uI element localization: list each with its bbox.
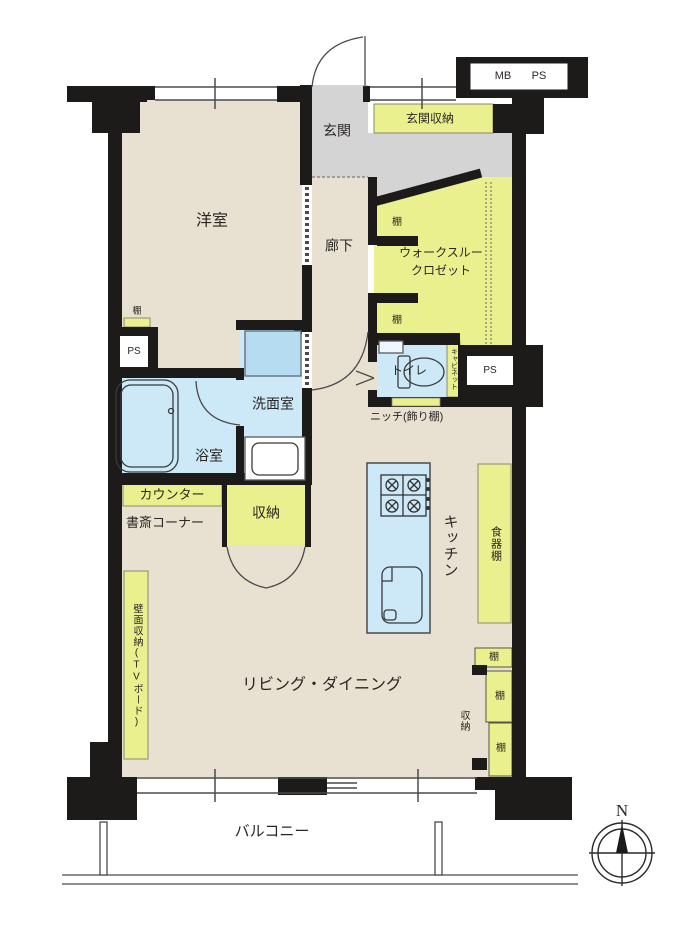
mb-ps-box (470, 63, 568, 90)
compass-needle (616, 824, 628, 853)
label-wtc-line2: クロゼット (411, 265, 471, 278)
label-shelf-br-a: 棚 (489, 653, 499, 664)
label-ps-meter: PS (532, 71, 547, 83)
label-toilet: トイレ (391, 365, 427, 378)
shelf-strip-left (124, 318, 150, 327)
label-ps-right: PS (483, 366, 496, 377)
floor-plan-drawing (0, 0, 690, 946)
label-niche: ニッチ(飾り棚) (370, 412, 443, 424)
label-north: N (616, 802, 628, 820)
label-washroom: 洗面室 (252, 397, 294, 412)
niche-shelf-strip (392, 398, 440, 406)
label-western-room: 洋室 (196, 214, 228, 231)
label-dish-cabinet: 食器棚 (490, 526, 501, 562)
label-living-dining: リビング・ダイニング (242, 678, 402, 695)
label-shelf-left: 棚 (132, 306, 141, 315)
washing-machine-pan (245, 437, 305, 480)
compass (589, 820, 655, 886)
label-wall-storage-tv: 壁面収納(TVボード) (131, 604, 141, 729)
label-ps-left: PS (127, 347, 140, 358)
label-kitchen: キッチン (443, 514, 458, 578)
label-shelf-closet-2: 棚 (392, 316, 402, 327)
label-shelf-br-c: 棚 (496, 744, 506, 755)
balcony-railing (62, 822, 578, 884)
label-study-corner: 書斎コーナー (126, 516, 204, 530)
label-hallway: 廊下 (325, 239, 353, 254)
label-counter: カウンター (139, 488, 204, 502)
label-entrance-storage: 玄関収納 (406, 113, 454, 126)
label-mb: MB (495, 71, 512, 83)
label-shelf-br-b: 棚 (495, 692, 505, 703)
label-wtc-line1: ウォークスルー (399, 247, 483, 260)
label-storage-br: 収納 (458, 710, 468, 732)
kitchen-island (367, 463, 430, 633)
label-balcony: バルコニー (235, 824, 310, 840)
label-bathroom: 浴室 (195, 449, 223, 464)
label-entrance: 玄関 (323, 124, 351, 139)
label-storage-center: 収納 (252, 506, 280, 521)
room-entrance-b (368, 133, 512, 177)
floor-plan: 洋室 玄関 玄関収納 MB PS 廊下 ウォークスルー クロゼット 棚 棚 棚 … (0, 0, 690, 946)
label-shelf-closet-1: 棚 (392, 218, 402, 229)
entrance-door (312, 36, 365, 87)
vanity-counter (245, 331, 301, 376)
label-cabinet: キャビネット (451, 348, 458, 390)
